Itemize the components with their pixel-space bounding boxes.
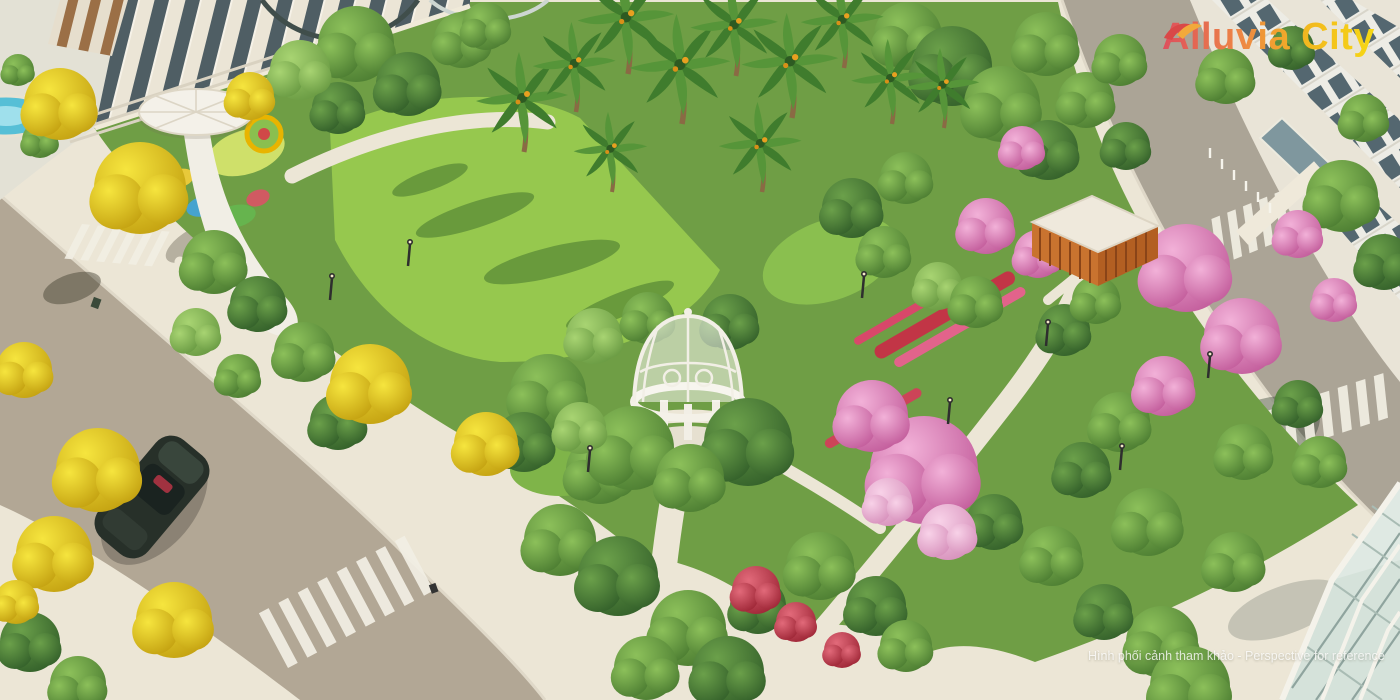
watermark-text: Hình phối cảnh tham khảo - Perspective f… bbox=[1088, 649, 1385, 663]
park-render-scene bbox=[0, 0, 1400, 700]
park-render-image: Alluvia City Hình phối cảnh tham khảo - … bbox=[0, 0, 1400, 700]
logo-bird-icon bbox=[1162, 18, 1204, 44]
alluvia-city-logo: Alluvia City bbox=[1162, 18, 1375, 56]
